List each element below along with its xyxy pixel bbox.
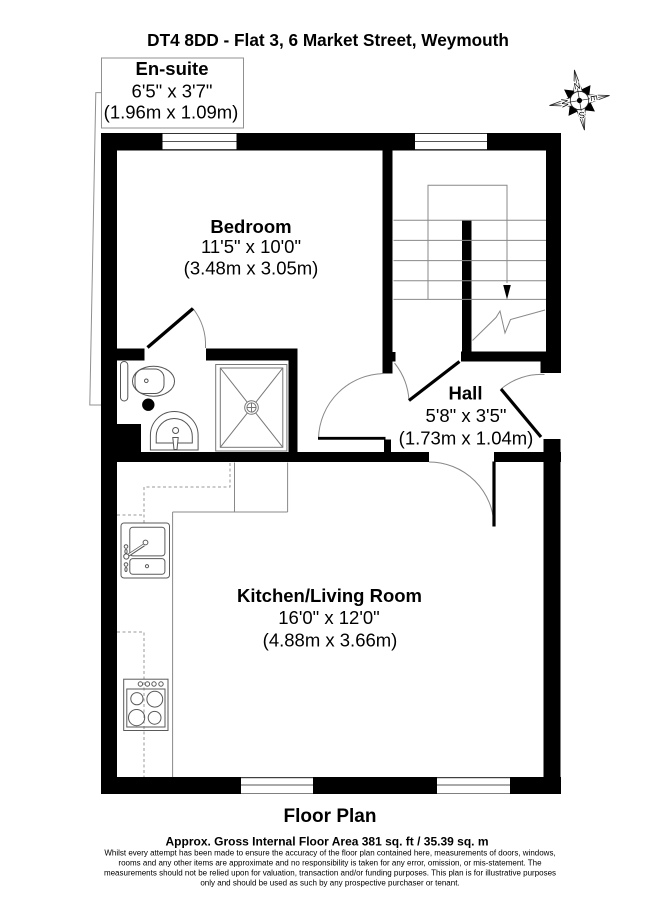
svg-text:6'5" x 3'7": 6'5" x 3'7" (132, 81, 213, 102)
svg-text:Approx. Gross Internal Floor A: Approx. Gross Internal Floor Area 381 sq… (166, 835, 489, 849)
svg-text:(4.88m x 3.66m): (4.88m x 3.66m) (263, 630, 398, 651)
svg-text:En-suite: En-suite (136, 58, 209, 79)
svg-text:Kitchen/Living Room: Kitchen/Living Room (237, 585, 422, 606)
svg-text:DT4 8DD - Flat 3, 6 Market Str: DT4 8DD - Flat 3, 6 Market Street, Weymo… (147, 30, 509, 50)
svg-text:measurements should not be rel: measurements should not be relied upon f… (104, 869, 556, 878)
svg-text:(1.73m x 1.04m): (1.73m x 1.04m) (399, 428, 534, 449)
svg-text:5'8" x 3'5": 5'8" x 3'5" (426, 405, 507, 426)
svg-text:Bedroom: Bedroom (210, 216, 291, 237)
svg-text:(3.48m x 3.05m): (3.48m x 3.05m) (184, 258, 319, 279)
svg-text:only and should be used as suc: only and should be used as such by any p… (200, 879, 459, 888)
svg-text:Hall: Hall (449, 383, 483, 404)
svg-text:rooms and any other items are: rooms and any other items are approximat… (118, 859, 542, 868)
svg-text:(1.96m x 1.09m): (1.96m x 1.09m) (104, 102, 239, 123)
svg-text:Floor Plan: Floor Plan (284, 806, 377, 827)
svg-text:Whilst every attempt has been: Whilst every attempt has been made to en… (104, 849, 555, 858)
svg-text:11'5" x 10'0": 11'5" x 10'0" (201, 236, 301, 257)
svg-text:16'0" x 12'0": 16'0" x 12'0" (278, 607, 379, 628)
